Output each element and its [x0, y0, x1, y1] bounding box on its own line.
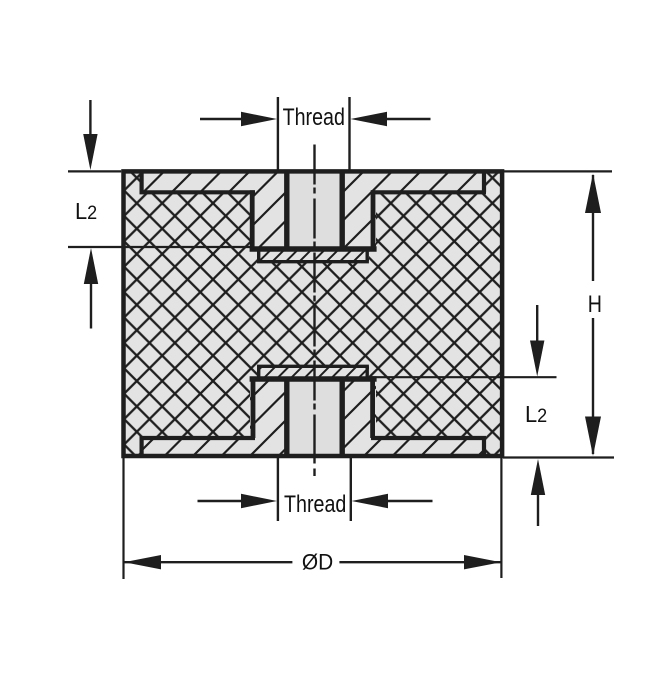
svg-text:H: H	[588, 290, 602, 317]
svg-text:Thread: Thread	[284, 490, 346, 517]
svg-text:L2: L2	[525, 401, 547, 427]
svg-text:ØD: ØD	[302, 550, 333, 575]
svg-text:L2: L2	[75, 198, 97, 224]
svg-text:Thread: Thread	[283, 103, 345, 130]
